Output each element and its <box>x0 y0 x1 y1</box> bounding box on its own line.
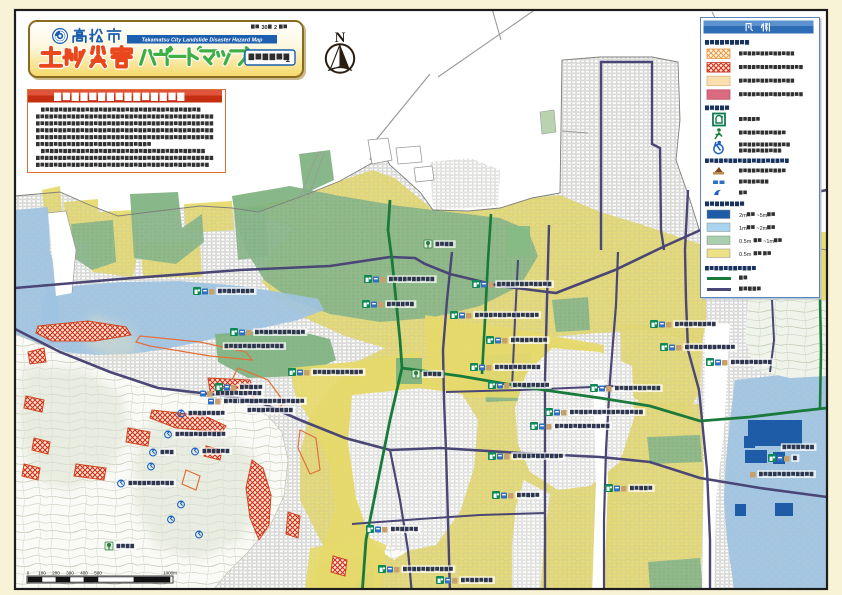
svg-text:0.5m: 0.5m <box>739 252 752 258</box>
svg-text:~5m: ~5m <box>756 213 767 219</box>
svg-text:2: 2 <box>274 25 277 31</box>
svg-text:Takamatsu City Landslide Disas: Takamatsu City Landslide Disaster Hazard… <box>142 38 264 44</box>
svg-text:1m: 1m <box>739 226 747 232</box>
svg-text:2m: 2m <box>739 213 747 219</box>
svg-text:30: 30 <box>262 25 268 31</box>
svg-text:~1m: ~1m <box>763 239 774 245</box>
svg-text:0.5m: 0.5m <box>739 239 752 245</box>
svg-text:1: 1 <box>286 55 291 64</box>
svg-text:~2m: ~2m <box>756 226 767 232</box>
